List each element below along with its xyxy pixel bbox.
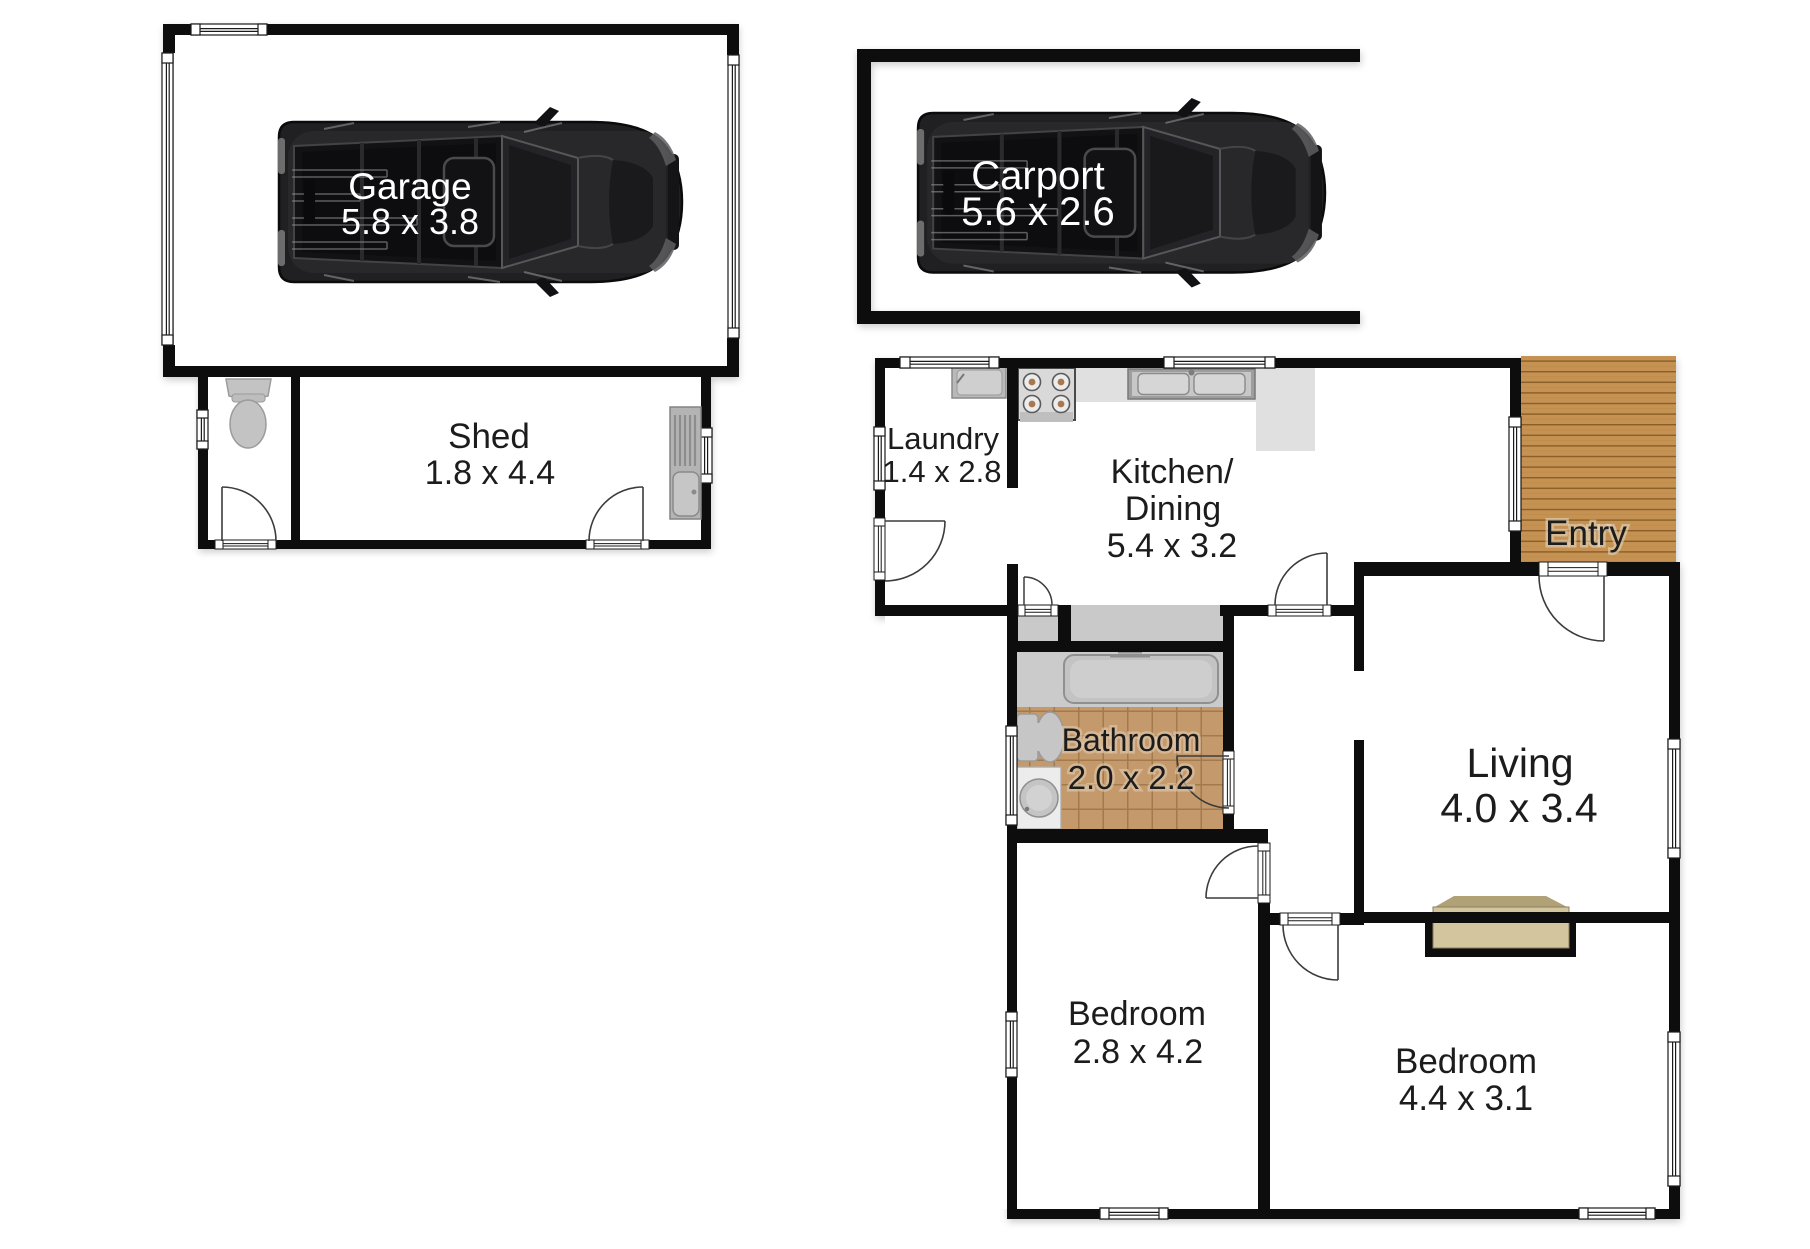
svg-text:Bedroom: Bedroom xyxy=(1068,995,1206,1033)
svg-text:2.8 x 4.2: 2.8 x 4.2 xyxy=(1073,1033,1203,1071)
svg-text:5.8 x 3.8: 5.8 x 3.8 xyxy=(341,201,479,242)
svg-text:Bedroom: Bedroom xyxy=(1395,1042,1537,1081)
svg-text:Entry: Entry xyxy=(1545,514,1627,553)
svg-text:1.8 x 4.4: 1.8 x 4.4 xyxy=(425,454,555,492)
svg-text:4.4 x 3.1: 4.4 x 3.1 xyxy=(1399,1079,1533,1118)
svg-text:5.4 x 3.2: 5.4 x 3.2 xyxy=(1107,527,1237,565)
svg-text:2.0 x 2.2: 2.0 x 2.2 xyxy=(1068,759,1195,796)
svg-text:Shed: Shed xyxy=(448,417,530,456)
svg-text:Dining: Dining xyxy=(1125,490,1221,528)
svg-text:4.0 x 3.4: 4.0 x 3.4 xyxy=(1440,785,1597,831)
svg-text:Living: Living xyxy=(1466,740,1573,786)
svg-text:Laundry: Laundry xyxy=(887,421,1000,456)
svg-text:5.6 x 2.6: 5.6 x 2.6 xyxy=(961,190,1114,234)
svg-text:Bathroom: Bathroom xyxy=(1062,722,1201,758)
svg-text:1.4 x 2.8: 1.4 x 2.8 xyxy=(883,454,1002,489)
svg-text:Kitchen/: Kitchen/ xyxy=(1111,453,1234,491)
